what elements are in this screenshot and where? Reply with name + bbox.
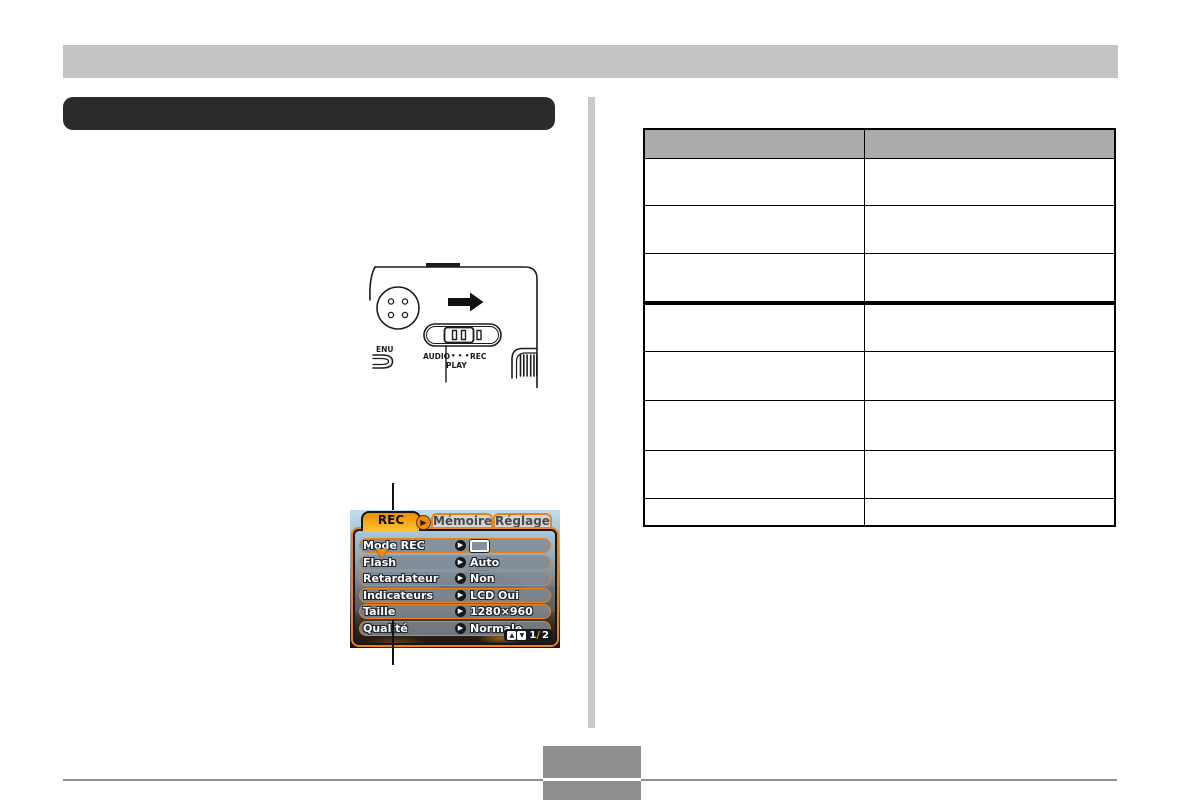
page-number-box-lower bbox=[543, 781, 641, 800]
section-title-bar bbox=[63, 97, 555, 130]
rec-tab-callout-line bbox=[392, 483, 394, 512]
table-header-cell bbox=[864, 129, 1115, 159]
slide-direction-arrow-icon bbox=[448, 293, 484, 312]
table-cell bbox=[864, 352, 1115, 401]
tab-down-triangle-icon bbox=[376, 549, 388, 558]
menu-row-indicateurs: Indicateurs ▶ LCD Oui bbox=[359, 588, 551, 603]
up-arrow-icon: ▲ bbox=[507, 631, 516, 640]
tab-memoire: Mémoire bbox=[431, 513, 493, 529]
switch-label-play: PLAY bbox=[446, 361, 467, 370]
tab-rec: REC bbox=[361, 511, 421, 531]
switch-label-audio: AUDIO bbox=[423, 352, 450, 361]
down-arrow-icon: ▼ bbox=[517, 631, 526, 640]
speaker-hole-icon bbox=[388, 312, 393, 317]
camera-illustration: AUDIO • • • REC PLAY ENU bbox=[330, 258, 540, 388]
table-row bbox=[644, 401, 1115, 451]
table-row bbox=[644, 451, 1115, 499]
table-cell bbox=[864, 206, 1115, 254]
menu-item-value: Non bbox=[470, 572, 495, 585]
speaker-circle bbox=[377, 287, 419, 329]
item-arrow-icon: ▶ bbox=[455, 606, 466, 617]
table-cell bbox=[864, 451, 1115, 499]
menu-item-value: Auto bbox=[470, 556, 499, 569]
table-row bbox=[644, 206, 1115, 254]
data-table bbox=[643, 128, 1116, 527]
footer-rule-left bbox=[63, 779, 543, 781]
menu-item-label: Retardateur bbox=[363, 572, 455, 585]
tab-selector-arrow-icon: ▶ bbox=[416, 515, 431, 530]
item-arrow-icon: ▶ bbox=[455, 557, 466, 568]
table-row bbox=[644, 254, 1115, 304]
lcd-page-indicator: ▲ ▼ 1 / 2 bbox=[504, 629, 552, 641]
item-arrow-icon: ▶ bbox=[455, 590, 466, 601]
menu-row-taille: Taille ▶ 1280×960 bbox=[359, 604, 551, 619]
menu-row-retardateur: Retardateur ▶ Non bbox=[359, 571, 551, 586]
pager-total: 2 bbox=[542, 630, 549, 641]
table-header-row bbox=[644, 129, 1115, 159]
table-cell bbox=[644, 451, 864, 499]
table-row bbox=[644, 303, 1115, 352]
menu-item-label: Qualité bbox=[363, 622, 455, 635]
table-cell bbox=[644, 352, 864, 401]
table-cell bbox=[644, 206, 864, 254]
table-cell bbox=[644, 159, 864, 206]
table-cell bbox=[644, 401, 864, 451]
page-header-bar bbox=[63, 45, 1118, 78]
table-row bbox=[644, 352, 1115, 401]
menu-item-value: LCD Oui bbox=[470, 589, 519, 602]
lcd-menu-screenshot: REC ▶ Mémoire Réglage Mode REC ▶ Flash ▶… bbox=[350, 510, 560, 648]
table-cell bbox=[644, 303, 864, 352]
menu-button-inner bbox=[373, 359, 389, 365]
knob-grip-mark bbox=[462, 331, 466, 340]
table-cell bbox=[864, 159, 1115, 206]
lcd-menu-box: Mode REC ▶ Flash ▶ Auto Retardateur ▶ No… bbox=[353, 529, 557, 645]
menu-button-outer bbox=[373, 355, 393, 368]
menu-button-label: ENU bbox=[376, 345, 394, 354]
menu-item-value: 1280×960 bbox=[470, 605, 533, 618]
table-row bbox=[644, 159, 1115, 206]
pager-separator: / bbox=[536, 630, 540, 641]
footer-rule-right bbox=[641, 779, 1117, 781]
mode-switch-knob bbox=[445, 328, 474, 343]
snapshot-mode-icon bbox=[470, 540, 489, 552]
switch-label-rec: REC bbox=[470, 352, 487, 361]
pager-current: 1 bbox=[529, 630, 536, 641]
track-grip-mark bbox=[477, 331, 481, 340]
item-arrow-icon: ▶ bbox=[455, 573, 466, 584]
table-row bbox=[644, 499, 1115, 527]
item-arrow-icon: ▶ bbox=[455, 540, 466, 551]
speaker-hole-icon bbox=[402, 299, 407, 304]
grip-hatch bbox=[521, 355, 537, 376]
table-cell bbox=[864, 254, 1115, 304]
table-cell bbox=[644, 254, 864, 304]
knob-grip-mark bbox=[453, 331, 457, 340]
table-cell bbox=[864, 401, 1115, 451]
tab-reglage: Réglage bbox=[493, 513, 552, 529]
camera-left-shoulder bbox=[370, 267, 375, 300]
page-number-box bbox=[543, 746, 641, 778]
quality-callout-line bbox=[392, 620, 394, 665]
speaker-hole-icon bbox=[388, 299, 393, 304]
shutter-notch bbox=[426, 263, 460, 267]
column-divider bbox=[588, 97, 595, 728]
manual-page: AUDIO • • • REC PLAY ENU REC ▶ Mémoire R… bbox=[0, 0, 1183, 800]
switch-label-dots: • • • bbox=[451, 352, 469, 360]
speaker-hole-icon bbox=[402, 312, 407, 317]
table-cell bbox=[864, 303, 1115, 352]
table-header-cell bbox=[644, 129, 864, 159]
menu-item-label: Indicateurs bbox=[363, 589, 455, 602]
table-cell bbox=[644, 499, 864, 527]
table-cell bbox=[864, 499, 1115, 527]
menu-item-label: Taille bbox=[363, 605, 455, 618]
mode-switch-track bbox=[427, 327, 499, 344]
item-arrow-icon: ▶ bbox=[455, 623, 466, 634]
